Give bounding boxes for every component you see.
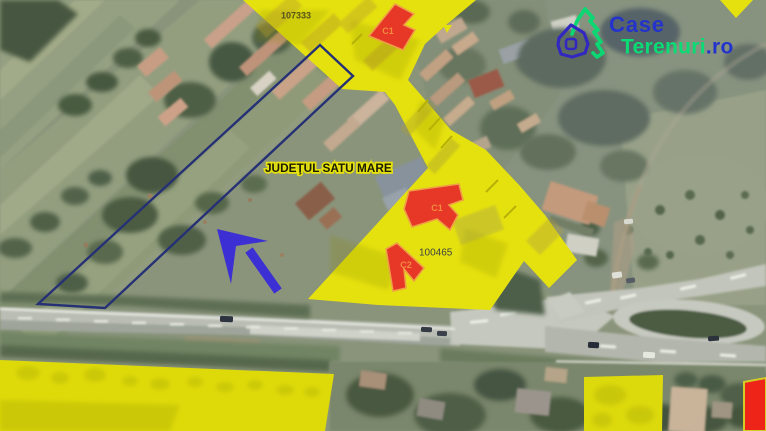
svg-text:C1: C1: [382, 26, 394, 36]
svg-text:Case: Case: [609, 12, 665, 37]
svg-text:100465: 100465: [419, 248, 453, 259]
svg-text:Terenuri.ro: Terenuri.ro: [621, 36, 734, 59]
svg-text:JUDEŢUL SATU MARE: JUDEŢUL SATU MARE: [265, 161, 392, 175]
svg-text:C2: C2: [400, 260, 412, 270]
svg-text:C1: C1: [431, 203, 443, 213]
svg-text:107333: 107333: [281, 11, 311, 21]
